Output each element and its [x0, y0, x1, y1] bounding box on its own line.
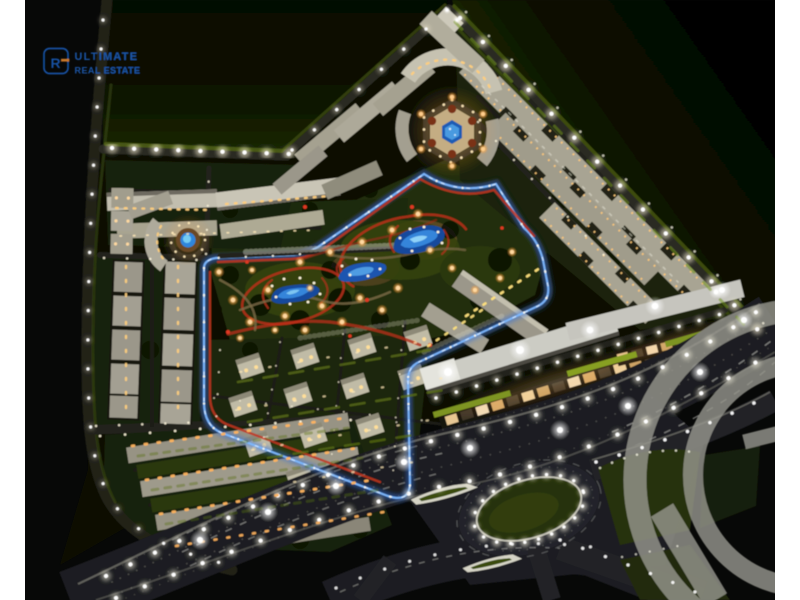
- svg-text:ULTIMATE: ULTIMATE: [75, 51, 139, 63]
- svg-text:REAL ESTATE: REAL ESTATE: [75, 66, 141, 76]
- svg-text:R: R: [51, 55, 61, 71]
